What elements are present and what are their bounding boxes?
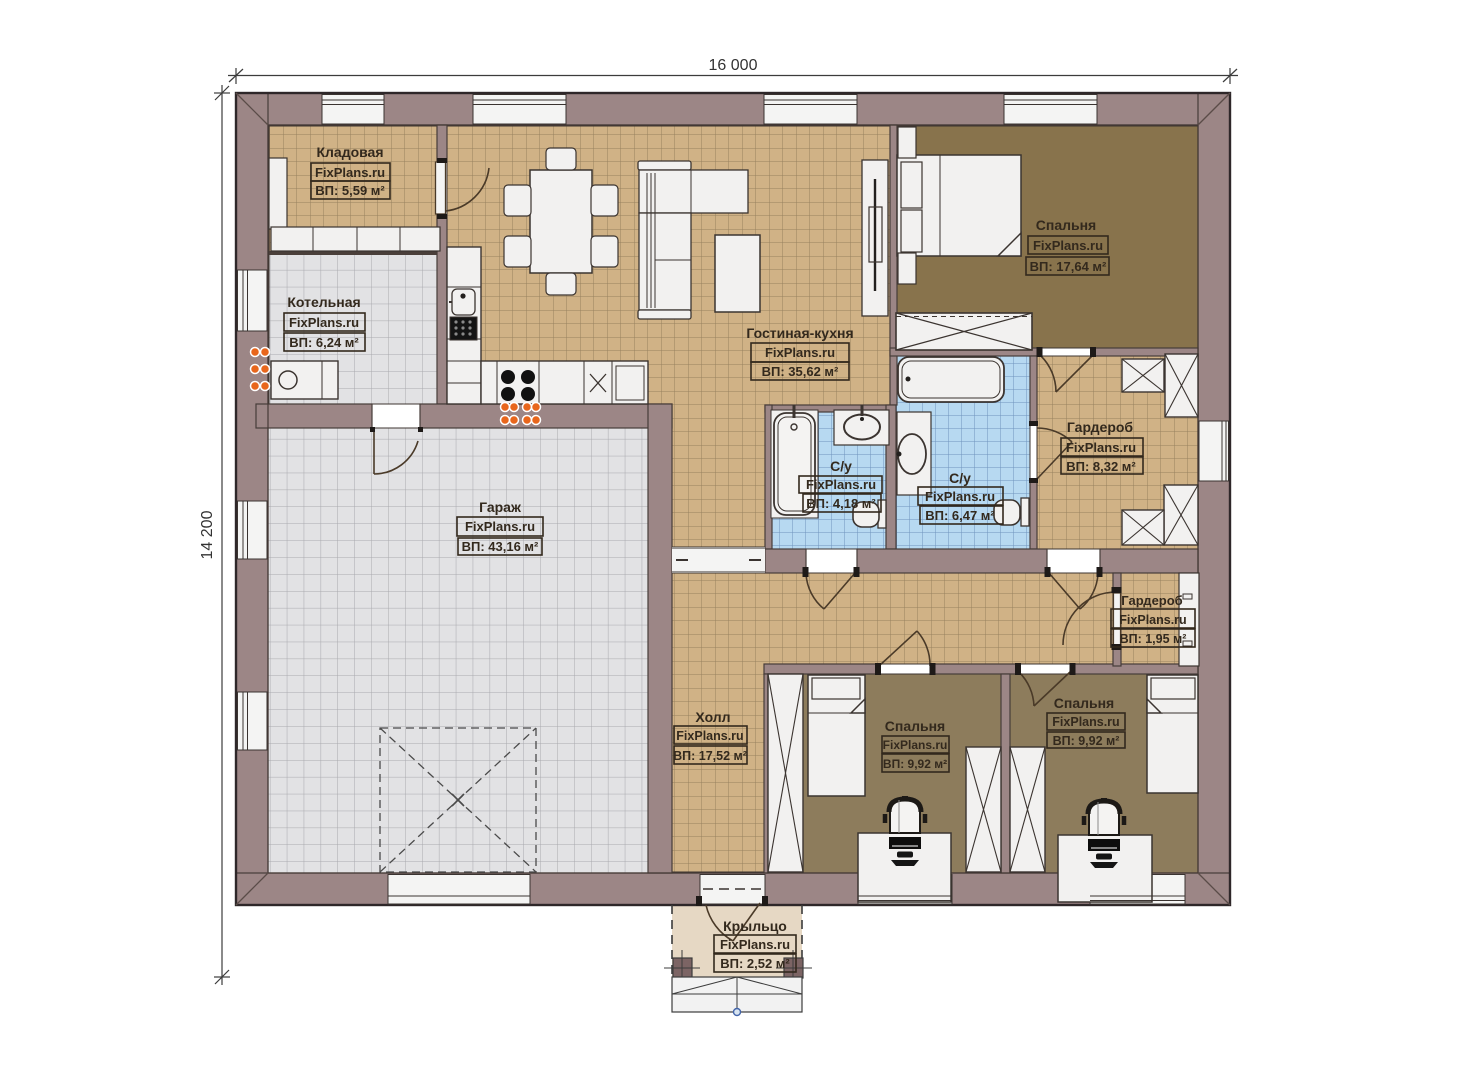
svg-text:ВП: 6,24 м²: ВП: 6,24 м²: [289, 335, 359, 350]
svg-text:ВП: 9,92 м²: ВП: 9,92 м²: [1053, 734, 1120, 748]
svg-text:Гардероб: Гардероб: [1067, 419, 1134, 435]
svg-text:ВП: 6,47 м²: ВП: 6,47 м²: [925, 508, 995, 523]
svg-text:Котельная: Котельная: [287, 294, 360, 310]
svg-text:ВП: 43,16 м²: ВП: 43,16 м²: [462, 539, 539, 554]
svg-text:16 000: 16 000: [709, 57, 758, 74]
svg-text:ВП: 17,52 м²: ВП: 17,52 м²: [673, 749, 747, 763]
svg-text:ВП: 35,62 м²: ВП: 35,62 м²: [762, 364, 839, 379]
svg-text:FixPlans.ru: FixPlans.ru: [806, 477, 876, 492]
svg-text:ВП: 4,18 м²: ВП: 4,18 м²: [806, 496, 876, 511]
svg-text:Кладовая: Кладовая: [316, 144, 383, 160]
svg-text:С/у: С/у: [949, 470, 971, 486]
svg-text:ВП: 17,64 м²: ВП: 17,64 м²: [1030, 259, 1107, 274]
svg-text:FixPlans.ru: FixPlans.ru: [1066, 440, 1136, 455]
svg-text:ВП: 2,52 м²: ВП: 2,52 м²: [720, 956, 790, 971]
svg-text:Гостиная-кухня: Гостиная-кухня: [746, 325, 853, 341]
svg-text:Спальня: Спальня: [1054, 695, 1114, 711]
svg-text:FixPlans.ru: FixPlans.ru: [315, 165, 385, 180]
svg-text:FixPlans.ru: FixPlans.ru: [1119, 613, 1186, 627]
svg-text:Спальня: Спальня: [885, 718, 945, 734]
svg-text:FixPlans.ru: FixPlans.ru: [289, 315, 359, 330]
svg-text:Гардероб: Гардероб: [1121, 593, 1182, 608]
svg-text:FixPlans.ru: FixPlans.ru: [720, 937, 790, 952]
svg-text:Крыльцо: Крыльцо: [723, 918, 787, 934]
svg-text:ВП: 8,32 м²: ВП: 8,32 м²: [1066, 459, 1136, 474]
svg-text:FixPlans.ru: FixPlans.ru: [925, 489, 995, 504]
svg-text:ВП: 1,95 м²: ВП: 1,95 м²: [1120, 632, 1187, 646]
svg-text:С/у: С/у: [830, 458, 852, 474]
svg-text:Гараж: Гараж: [479, 499, 522, 515]
svg-text:ВП: 9,92 м²: ВП: 9,92 м²: [883, 757, 947, 771]
svg-text:FixPlans.ru: FixPlans.ru: [883, 738, 948, 752]
svg-text:FixPlans.ru: FixPlans.ru: [465, 519, 535, 534]
svg-text:FixPlans.ru: FixPlans.ru: [1052, 715, 1119, 729]
svg-text:ВП: 5,59 м²: ВП: 5,59 м²: [315, 183, 385, 198]
svg-text:FixPlans.ru: FixPlans.ru: [765, 345, 835, 360]
svg-text:Холл: Холл: [695, 709, 730, 725]
svg-text:FixPlans.ru: FixPlans.ru: [676, 729, 743, 743]
svg-text:FixPlans.ru: FixPlans.ru: [1033, 238, 1103, 253]
svg-text:Спальня: Спальня: [1036, 217, 1096, 233]
svg-text:14 200: 14 200: [199, 510, 216, 559]
